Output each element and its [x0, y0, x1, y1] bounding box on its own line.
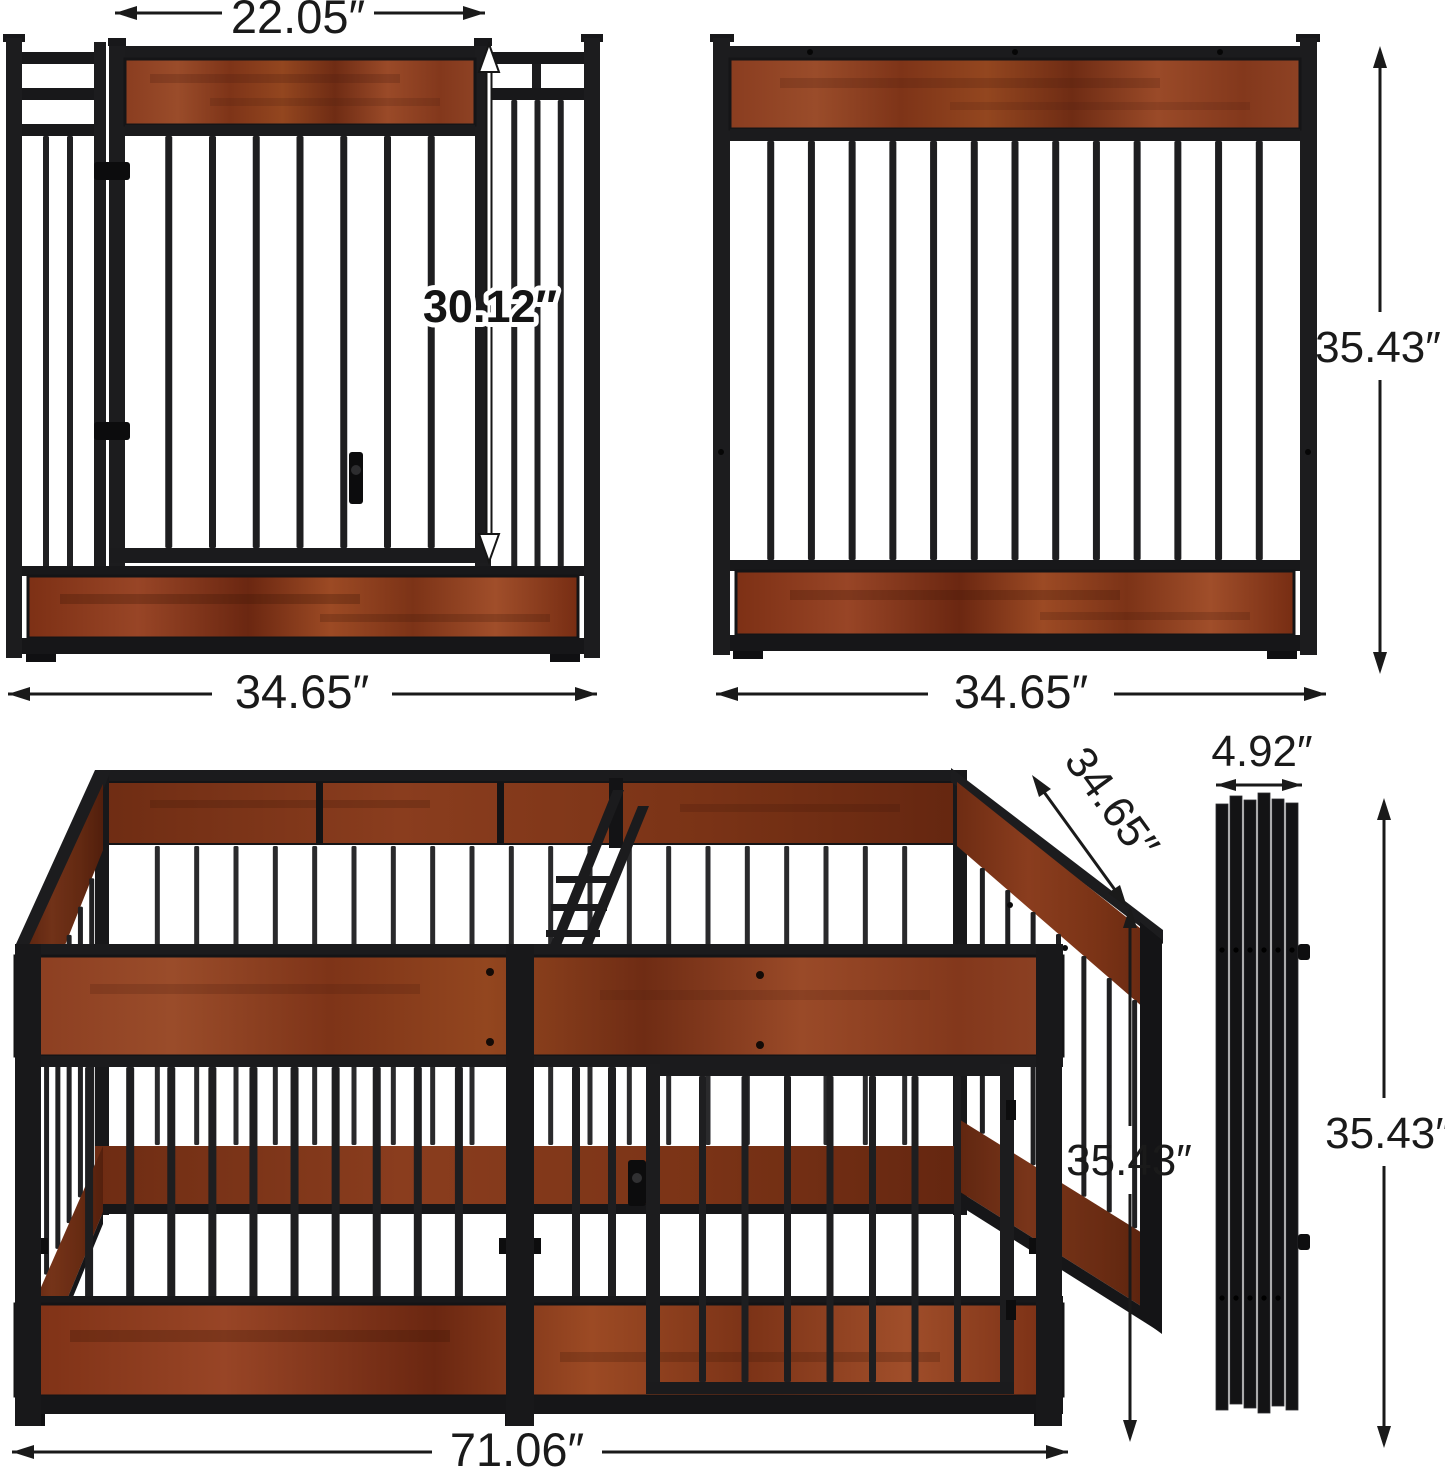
door-bars: [165, 136, 435, 548]
bar: [572, 1067, 580, 1300]
bar: [784, 1076, 791, 1382]
wood-grain: [780, 78, 1160, 88]
post-tab: [1029, 1238, 1036, 1254]
hinge: [94, 162, 130, 180]
left-post: [6, 38, 22, 658]
wood-panel: [730, 59, 1300, 129]
wood-grain: [1040, 612, 1250, 620]
folded-height-label: 35.43″: [1325, 1109, 1445, 1158]
latch-knob: [632, 1173, 642, 1183]
arrowhead-upleft: [1032, 775, 1051, 797]
latch-knob: [351, 465, 361, 475]
arrowhead-left: [1216, 779, 1236, 791]
bar: [808, 141, 815, 560]
bar: [930, 141, 937, 560]
rail: [491, 88, 584, 100]
product-dimension-diagram: 22.05″ 30.12″ 34.65″ 34.65″ 35.43″ 34.65…: [0, 0, 1445, 1474]
folded-slat: [1258, 793, 1270, 1413]
wood-grain: [60, 594, 360, 604]
bar: [869, 1076, 876, 1382]
gate-bottom-rail: [646, 1382, 1014, 1394]
front-panel-view: [3, 34, 603, 662]
bar: [1174, 141, 1181, 560]
bar: [827, 1076, 834, 1382]
bolt: [1275, 947, 1280, 952]
assembled-pen-view: [15, 768, 1163, 1426]
rail: [491, 52, 584, 64]
arrowhead-up: [1377, 798, 1391, 820]
panel-height-label: 35.43″: [1315, 323, 1441, 372]
diagram-svg: 22.05″ 30.12″ 34.65″ 34.65″ 35.43″ 34.65…: [0, 0, 1445, 1474]
bolt: [1261, 947, 1266, 952]
bar: [971, 141, 978, 560]
bar: [455, 1067, 463, 1300]
front-right-post: [1036, 944, 1062, 1426]
arrowhead-right: [575, 687, 597, 701]
rail: [22, 88, 94, 100]
door-top-rail: [109, 46, 491, 59]
gate-left-post: [646, 1064, 660, 1394]
bar: [253, 136, 260, 548]
folded-slat: [1244, 800, 1256, 1408]
pen-width-dimension: 71.06″: [12, 1423, 1068, 1474]
rear-top-rail: [95, 770, 967, 782]
bar: [67, 136, 73, 568]
bolt: [1233, 1295, 1238, 1300]
arrowhead-left: [12, 1445, 34, 1459]
door-latch: [349, 452, 363, 504]
wood-grain: [560, 1352, 940, 1362]
screw: [486, 968, 494, 976]
bar: [165, 136, 172, 548]
wood-grain: [950, 102, 1250, 110]
gate-top-rail: [646, 1064, 1014, 1076]
bar: [384, 136, 391, 548]
folded-width-dimension: 4.92″: [1211, 727, 1312, 791]
rear-wood-rail: [95, 782, 967, 844]
divider-rung: [556, 876, 614, 883]
mid-rail: [730, 129, 1300, 141]
bar: [291, 1067, 299, 1300]
door-mid-rail: [125, 125, 475, 136]
bolt: [1233, 947, 1238, 952]
arrowhead-right: [1046, 1445, 1068, 1459]
bolt: [1247, 1295, 1252, 1300]
screw: [756, 1041, 764, 1049]
bar: [558, 100, 564, 568]
screw: [756, 971, 764, 979]
arrowhead-left: [716, 687, 738, 701]
bar: [209, 136, 216, 548]
screw: [1217, 49, 1223, 55]
bar: [889, 141, 896, 560]
bar: [608, 1067, 616, 1300]
door-wood-panel: [125, 59, 475, 125]
post-tab: [41, 1238, 48, 1254]
folded-panels-view: [1216, 793, 1310, 1413]
panel-bars: [767, 141, 1263, 560]
bar: [428, 136, 435, 548]
bar: [699, 1076, 706, 1382]
wood-grain: [680, 804, 900, 812]
front-wood-rail: [15, 956, 1063, 1056]
wood-grain: [150, 800, 430, 808]
screw: [486, 1038, 494, 1046]
bar: [742, 1076, 749, 1382]
screw: [1305, 449, 1311, 455]
bar: [912, 1076, 919, 1382]
arrowhead-right: [1282, 779, 1302, 791]
right-bars: [511, 100, 564, 568]
arrowhead-left: [115, 6, 137, 20]
wood-grain: [790, 590, 1120, 600]
latch-knob: [1298, 944, 1310, 960]
post-tab: [499, 1238, 506, 1254]
arrowhead-up: [1373, 46, 1387, 68]
side-panel-width-label: 34.65″: [954, 665, 1088, 718]
foot: [550, 654, 580, 662]
front-left-post: [15, 944, 41, 1426]
foot: [1267, 651, 1297, 659]
side-panel-width-dimension: 34.65″: [716, 665, 1326, 718]
arrowhead-right: [463, 6, 485, 20]
bottom-rail: [730, 635, 1300, 651]
panel-height-dimension: 35.43″: [1315, 46, 1441, 674]
left-post: [713, 38, 730, 655]
bar: [511, 100, 517, 568]
bolt: [1247, 947, 1252, 952]
door-left-post: [109, 46, 125, 566]
foot: [733, 651, 763, 659]
bottom-rail: [22, 638, 584, 654]
bar: [167, 1067, 175, 1300]
screw: [718, 449, 724, 455]
gate-hinge: [1006, 1100, 1016, 1120]
arrowhead-left: [8, 687, 30, 701]
bar: [297, 136, 304, 548]
bar: [43, 136, 49, 568]
latch-knob: [1298, 1234, 1310, 1250]
folded-slat: [1230, 796, 1242, 1404]
foot: [26, 654, 56, 662]
bolt: [1275, 1295, 1280, 1300]
bar: [85, 1067, 93, 1300]
right-post: [584, 38, 600, 658]
bar: [1134, 141, 1141, 560]
hinge: [94, 422, 130, 440]
bar: [414, 1067, 422, 1300]
bar: [1215, 141, 1222, 560]
rear-bracket: [316, 782, 323, 844]
bolt: [1261, 1295, 1266, 1300]
bar: [249, 1067, 257, 1300]
bolt: [1289, 947, 1294, 952]
side-panel-view: [710, 34, 1320, 659]
arrowhead-right: [1304, 687, 1326, 701]
door-cap: [108, 38, 126, 46]
rail: [22, 52, 94, 64]
bolt: [1219, 947, 1224, 952]
door-width-dimension: 22.05″: [115, 0, 485, 43]
wood-grain: [90, 984, 420, 994]
pen-depth-label: 34.65″: [1055, 738, 1169, 868]
folded-slat: [1286, 803, 1298, 1410]
screw: [807, 49, 813, 55]
bar: [1052, 141, 1059, 560]
arrowhead-down: [1377, 1426, 1391, 1448]
bar: [1256, 141, 1263, 560]
left-bars: [43, 136, 73, 568]
bolt: [1219, 1295, 1224, 1300]
folded-height-dimension: 35.43″: [1325, 798, 1445, 1448]
front-panel-width-label: 34.65″: [235, 665, 369, 718]
bar: [1132, 1000, 1137, 1228]
wood-grain: [600, 990, 930, 1000]
bar: [954, 1076, 961, 1382]
door-width-label: 22.05″: [231, 0, 365, 43]
front-bottom-rail: [15, 1396, 1063, 1414]
bottom-top-rail: [730, 560, 1300, 571]
bar: [1012, 141, 1019, 560]
arrowhead-down: [1373, 652, 1387, 674]
bottom-wood-plank: [28, 576, 578, 638]
rail-connector: [532, 64, 541, 88]
bar: [332, 1067, 340, 1300]
door-height-label: 30.12″: [423, 281, 557, 332]
folded-width-label: 4.92″: [1211, 727, 1312, 776]
divider-rung: [551, 904, 607, 911]
bar: [767, 141, 774, 560]
arrowhead-down: [1123, 1420, 1137, 1442]
inner-post: [94, 42, 106, 618]
folded-slat: [1216, 804, 1228, 1410]
front-center-post: [506, 944, 534, 1426]
wood-grain: [70, 1330, 450, 1342]
door-bottom-rail: [109, 548, 491, 563]
screw: [1007, 902, 1013, 908]
divider-rung: [546, 930, 600, 937]
pen-width-label: 71.06″: [450, 1423, 584, 1474]
bar: [373, 1067, 381, 1300]
rail: [22, 124, 94, 136]
gate-hinge: [1006, 1300, 1016, 1320]
bar: [1093, 141, 1100, 560]
wood-grain: [150, 74, 400, 83]
post-tab: [534, 1238, 541, 1254]
bar: [208, 1067, 216, 1300]
folded-slat: [1272, 799, 1284, 1406]
rear-bracket: [497, 782, 504, 844]
wood-grain: [320, 614, 550, 622]
bar: [849, 141, 856, 560]
front-top-rail: [15, 944, 1063, 956]
bottom-wood-plank: [736, 571, 1294, 635]
bar: [340, 136, 347, 548]
pen-height-label: 35.43″: [1066, 1136, 1192, 1185]
bar: [126, 1067, 134, 1300]
wood-grain: [210, 98, 440, 106]
right-wall-front-post: [1140, 922, 1162, 1334]
screw: [1012, 49, 1018, 55]
front-panel-width-dimension: 34.65″: [8, 665, 597, 718]
bar: [535, 100, 541, 568]
